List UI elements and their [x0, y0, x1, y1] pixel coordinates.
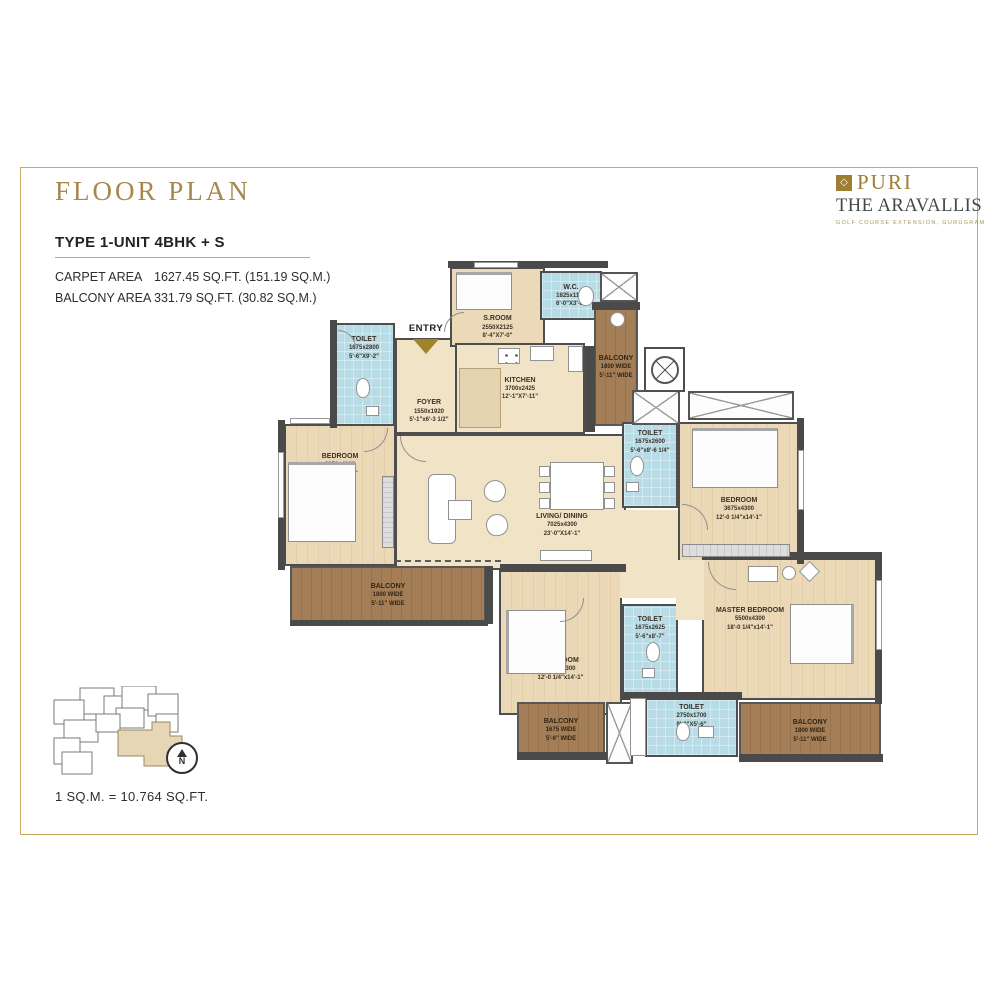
room-dim-ft: 12'-0 1/4"x14'-1"	[501, 674, 620, 682]
north-label: N	[179, 757, 186, 767]
window	[278, 452, 284, 518]
kitchen-sink-fixture	[530, 346, 554, 361]
wall-segment	[485, 566, 493, 624]
washbasin-fixture	[642, 668, 655, 678]
wall-segment	[517, 752, 607, 760]
toilet-pan-fixture	[676, 722, 690, 741]
room-toilet-master: TOILET2750x17009'-0"X5'-6"	[645, 698, 738, 757]
room-balcony-left: BALCONY1800 WIDE5'-11" WIDE	[290, 566, 486, 624]
toilet-pan-fixture	[646, 642, 660, 662]
desk-fixture	[748, 566, 778, 582]
brand-tagline: GOLF COURSE EXTENSION, GURUGRAM	[836, 220, 986, 226]
wall-segment	[739, 754, 883, 762]
page-title: FLOOR PLAN	[55, 176, 251, 207]
shower-fixture	[630, 698, 646, 756]
room-dim-mm: 1800 WIDE	[596, 364, 636, 372]
wall-segment	[330, 320, 337, 428]
brand-subname: THE ARAVALLIS	[836, 196, 986, 217]
kitchen-counter-fixture	[459, 368, 501, 428]
shaft-hatch	[600, 272, 638, 302]
brand-name: PURI	[857, 170, 913, 195]
washbasin-fixture	[626, 482, 639, 492]
room-name: BALCONY	[519, 717, 603, 726]
room-name: LIVING/ DINING	[502, 512, 622, 521]
room-dim-ft: 5'-1"x6'-3 1/2"	[397, 416, 461, 424]
room-dim-ft: 18'-0 1/4"x14'-1"	[708, 624, 792, 632]
floor-plan-drawing: TOILET1675x28005'-6"X9'-2" FOYER1550x192…	[278, 260, 898, 800]
scale-note: 1 SQ.M. = 10.764 SQ.FT.	[55, 789, 208, 804]
window	[290, 418, 330, 424]
toilet-pan-fixture	[356, 378, 370, 398]
room-dim-ft: 5'-6"X9'-2"	[335, 353, 393, 361]
room-dim-ft: 5'-6"x8'-6 1/4"	[624, 447, 676, 455]
room-dim-mm: 1675 WIDE	[519, 727, 603, 735]
window	[474, 262, 518, 268]
corridor	[620, 510, 678, 598]
room-name: BEDROOM	[680, 496, 798, 505]
room-name: TOILET	[624, 615, 676, 624]
window	[798, 450, 804, 510]
room-dim-ft: 5'-6" WIDE	[519, 735, 603, 743]
dining-chair-fixture	[539, 482, 550, 493]
room-name: TOILET	[624, 429, 676, 438]
room-name: MASTER BEDROOM	[708, 606, 792, 615]
room-dim-mm: 1675x2600	[624, 438, 676, 446]
wall-segment	[448, 261, 608, 268]
room-dim-ft: 5'-6"x8'-7"	[624, 633, 676, 641]
balcony-area-label: BALCONY AREA	[55, 291, 154, 305]
wall-segment	[585, 346, 595, 432]
wall-segment	[290, 620, 488, 626]
open-boundary-dashed-line	[395, 560, 501, 562]
room-dim-ft: 23'-0"X14'-1"	[502, 530, 622, 538]
dining-chair-fixture	[539, 466, 550, 477]
room-dim-ft: 9'-0"X5'-6"	[647, 721, 736, 729]
room-name: TOILET	[647, 703, 736, 712]
room-name: BALCONY	[292, 582, 484, 591]
window	[876, 580, 882, 650]
room-dim-mm: 2550X2125	[452, 324, 543, 332]
brand-logo: ◇ PURI THE ARAVALLIS GOLF COURSE EXTENSI…	[836, 170, 986, 226]
chair-fixture	[782, 566, 796, 580]
room-name: BEDROOM	[286, 452, 394, 461]
corridor	[676, 560, 704, 620]
room-dim-mm: 1675x2625	[624, 624, 676, 632]
wardrobe-niche-hatch	[688, 391, 794, 420]
bed-fixture	[790, 604, 854, 664]
wall-segment	[592, 302, 640, 310]
bed-fixture	[506, 610, 566, 674]
entry-arrow-icon	[413, 339, 439, 354]
room-dim-mm: 1550x1920	[397, 408, 461, 416]
toilet-pan-fixture	[578, 286, 594, 306]
brand-diamond-icon: ◇	[836, 175, 852, 191]
dining-chair-fixture	[604, 498, 615, 509]
room-balcony-bottom-right: BALCONY1800 WIDE5'-11" WIDE	[739, 702, 881, 760]
entry-label: ENTRY	[398, 323, 454, 334]
room-dim-mm: 1800 WIDE	[292, 592, 484, 600]
washbasin-fixture	[698, 726, 714, 738]
room-name: FOYER	[397, 398, 461, 407]
fridge-fixture	[568, 346, 583, 372]
wardrobe-fixture	[382, 476, 394, 548]
heading-underline	[55, 257, 310, 258]
bed-fixture	[456, 272, 512, 310]
room-dim-ft: 8'-4"X7'-0"	[452, 332, 543, 340]
room-balcony-bottom-left: BALCONY1675 WIDE5'-6" WIDE	[517, 702, 605, 758]
bed-fixture	[692, 428, 778, 488]
dining-chair-fixture	[604, 466, 615, 477]
shaft-hatch-bottom	[606, 702, 633, 764]
dining-chair-fixture	[604, 482, 615, 493]
dining-table-fixture	[550, 462, 604, 510]
room-dim-mm: 2750x1700	[647, 712, 736, 720]
carpet-area-label: CARPET AREA	[55, 270, 154, 284]
lift-shaft-hatch	[632, 390, 680, 425]
dining-chair-fixture	[539, 498, 550, 509]
stove-fixture	[498, 348, 520, 364]
toilet-pan-fixture	[630, 456, 644, 476]
floor-plan-page: FLOOR PLAN ◇ PURI THE ARAVALLIS GOLF COU…	[0, 0, 1000, 1000]
stair-circle-icon	[651, 356, 679, 384]
room-name: BALCONY	[741, 718, 879, 727]
washbasin-fixture	[610, 312, 625, 327]
room-dim-ft: 5'-11" WIDE	[596, 372, 636, 380]
stair-core-feature	[644, 347, 685, 392]
wall-segment	[500, 564, 626, 572]
wardrobe-fixture	[682, 544, 790, 557]
room-dim-ft: 5'-11" WIDE	[741, 736, 879, 744]
room-dim-mm: 5500x4300	[708, 615, 792, 623]
room-name: BALCONY	[596, 354, 636, 363]
tv-console-fixture	[540, 550, 592, 561]
room-dim-ft: 5'-11" WIDE	[292, 600, 484, 608]
washbasin-fixture	[366, 406, 379, 416]
north-compass: N	[166, 742, 198, 774]
room-dim-mm: 7025x4300	[502, 521, 622, 529]
coffee-table-fixture	[448, 500, 472, 520]
key-plan	[52, 686, 222, 785]
bed-fixture	[288, 462, 356, 542]
key-plan-drawing	[52, 686, 222, 780]
room-dim-mm: 1800 WIDE	[741, 728, 879, 736]
room-name: S.ROOM	[452, 314, 543, 323]
entry-marker: ENTRY	[398, 323, 454, 354]
unit-type-heading: TYPE 1-UNIT 4BHK + S	[55, 234, 225, 251]
